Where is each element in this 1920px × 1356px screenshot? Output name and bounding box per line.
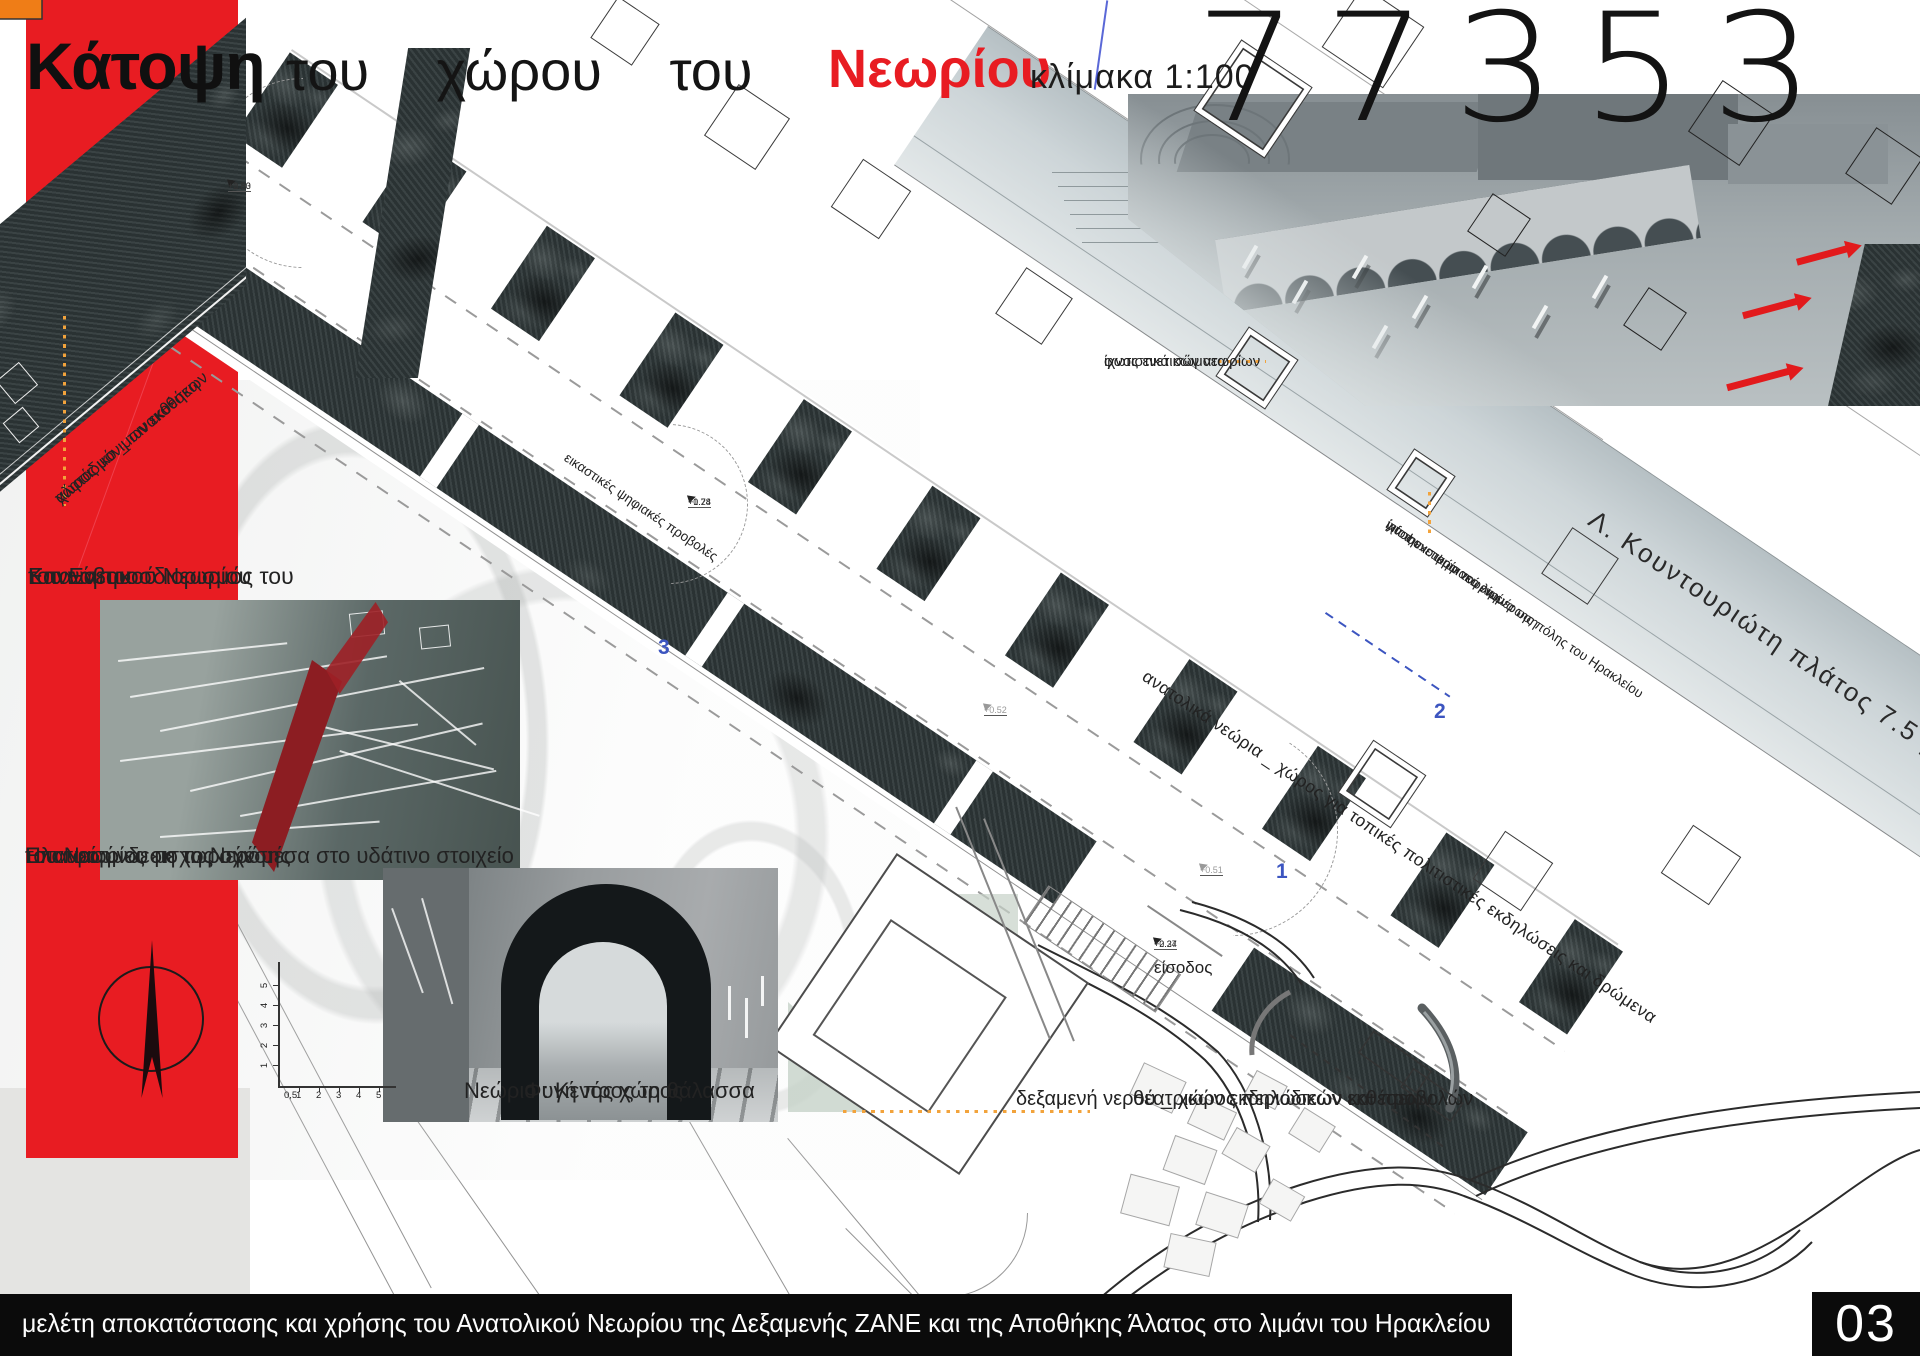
arch-stick — [761, 976, 764, 1006]
skylight-outline — [831, 159, 912, 240]
sketch-box — [419, 624, 451, 649]
section-line — [1325, 612, 1450, 697]
presentation-board: αλατάδικο _ πινακοθήκη χώρος μόνιμων εκθ… — [0, 0, 1920, 1356]
label-tank: δεξαμενή νερού _ χώρος περιοδικών εκθέσε… — [1016, 1086, 1473, 1112]
scalebar-tick-label: 5 — [259, 983, 270, 988]
scalebar-tick-label: 1 — [259, 1063, 270, 1068]
skylight-outline — [995, 267, 1073, 345]
page-number: 03 — [1835, 1294, 1897, 1354]
arch-left-pillar — [383, 868, 469, 1122]
scalebar-tick-label: 4 — [259, 1003, 270, 1008]
page-title-neoriou: Νεωρίου — [828, 38, 1051, 100]
label-line: Πλατφόρμες εισχωρούν μέσα στο υδάτινο στ… — [25, 840, 514, 871]
scalebar-tick-label: 3 — [259, 1023, 270, 1028]
label-line: του Ενετικού Νεωρίου — [28, 560, 251, 592]
page-number-block: 03 — [1812, 1292, 1920, 1356]
arch-stick — [728, 986, 731, 1020]
section-number: 2 — [1434, 700, 1446, 724]
concept-sketch-inset — [100, 600, 520, 880]
scalebar-tick-label: 3 — [336, 1090, 341, 1101]
scalebar-tick-label: 4 — [356, 1090, 361, 1101]
arch-stick — [745, 998, 748, 1038]
scalebar-tick-label: 5 — [376, 1090, 381, 1101]
label-empty-space: Νεώριο : Κενός χώρος Φυγή προς τη θάλασσ… — [464, 1076, 755, 1106]
scalebar-tick-label: 2 — [259, 1043, 270, 1048]
water-tank-inner — [813, 919, 1007, 1113]
page-title-middle: του χώρου του — [286, 38, 753, 103]
section-number: 1 — [1276, 860, 1288, 884]
label-entrance: είσοδος — [1154, 958, 1212, 978]
label-line: θεατρικών εκδηλώσεων και προβολών — [1016, 1086, 1473, 1112]
page-title-kataopsi: Κάτοψη — [26, 28, 265, 104]
panel-number: 77353 — [1195, 0, 1840, 156]
label-line: φωτιστικά σώματα — [1104, 352, 1226, 371]
skylight-outline — [1661, 825, 1742, 906]
section-number: 3 — [658, 636, 670, 660]
label-line: Φυγή προς τη θάλασσα — [464, 1076, 755, 1106]
footer-study-text: μελέτη αποκατάστασης και χρήσης του Ανατ… — [22, 1308, 1491, 1339]
scalebar-tick-label: 1 — [296, 1090, 301, 1101]
footer-bar: μελέτη αποκατάστασης και χρήσης του Ανατ… — [0, 1294, 1512, 1356]
scalebar-tick-label: 2 — [316, 1090, 321, 1101]
orange-dotted-leader — [1428, 492, 1431, 534]
